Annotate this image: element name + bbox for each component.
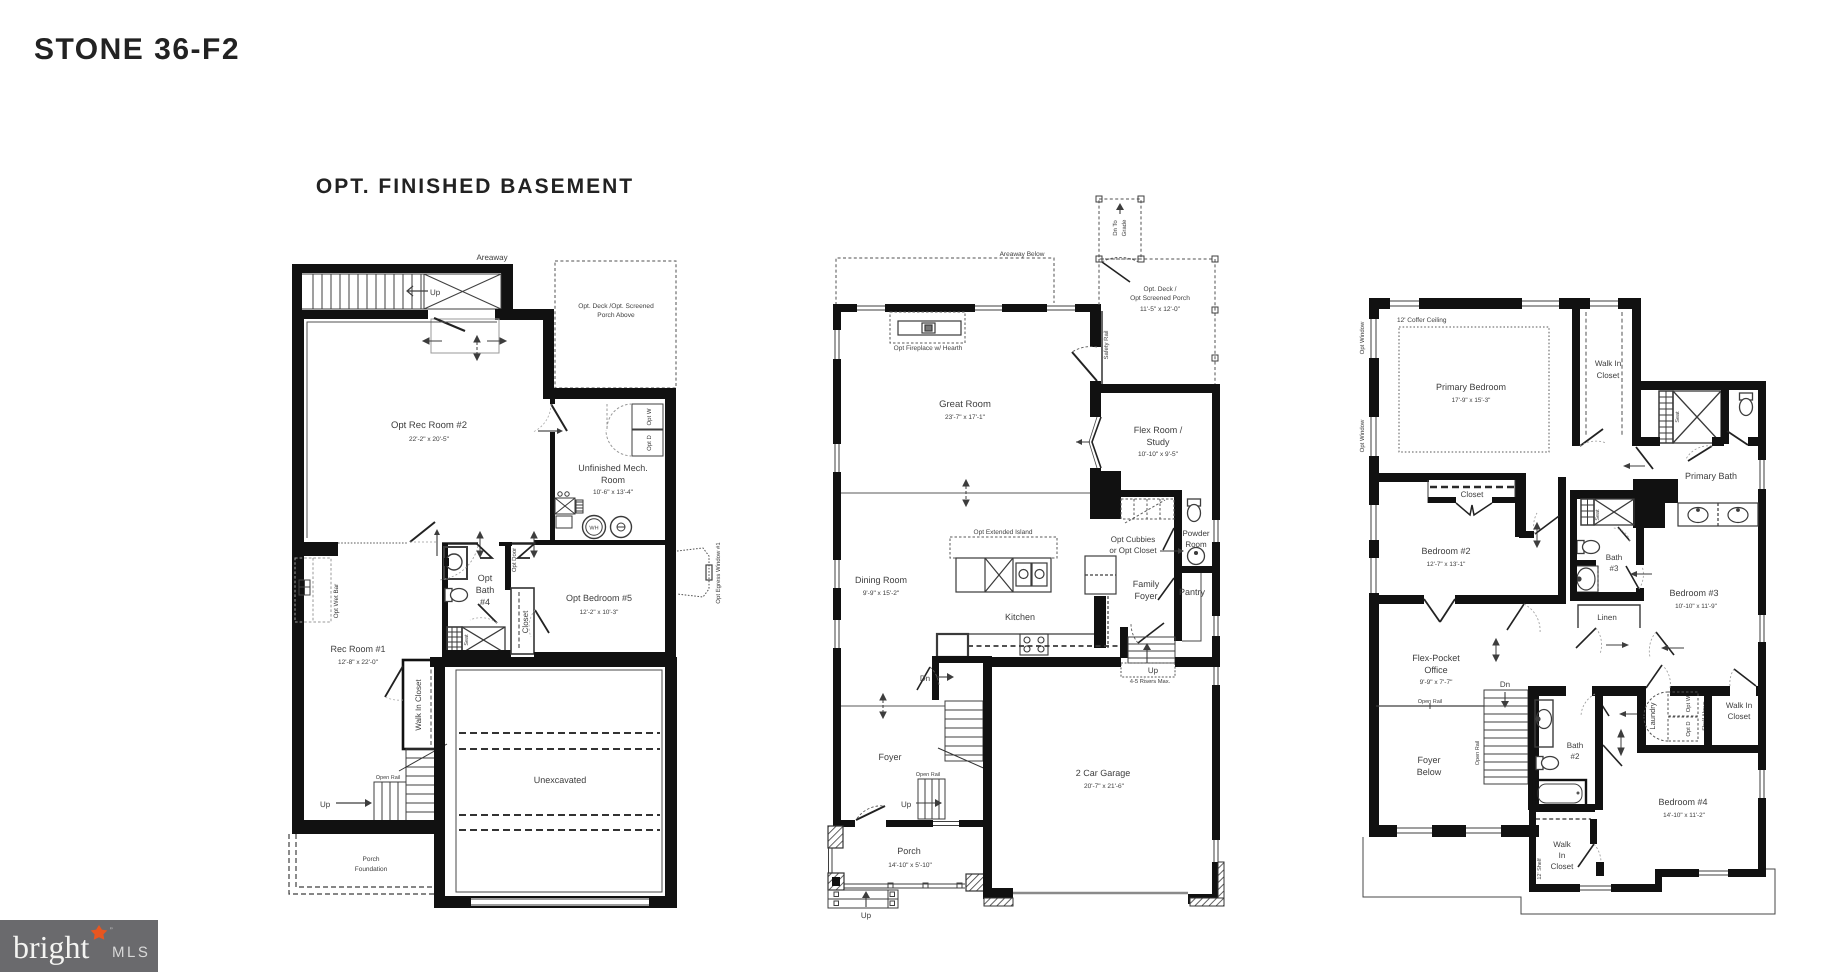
svg-text:Areaway Below: Areaway Below [1000,251,1045,258]
svg-text:Areaway: Areaway [476,253,507,262]
svg-text:20'-7" x 21'-6": 20'-7" x 21'-6" [1084,783,1125,790]
svg-text:In: In [1559,851,1566,860]
svg-text:#3: #3 [1610,564,1619,573]
svg-text:Pantry: Pantry [1179,587,1206,597]
svg-text:#2: #2 [1571,752,1580,761]
svg-text:Opt Window: Opt Window [1359,419,1366,452]
svg-text:Seat: Seat [1675,411,1681,423]
svg-text:10'-10" x 11'-9": 10'-10" x 11'-9" [1675,603,1717,610]
svg-text:Walk: Walk [1553,840,1571,849]
svg-text:Bedroom #3: Bedroom #3 [1669,588,1718,598]
svg-text:OPT. FINISHED BASEMENT: OPT. FINISHED BASEMENT [316,175,634,198]
svg-text:12'-7" x 13'-1": 12'-7" x 13'-1" [1427,561,1466,568]
svg-text:Rec Room #1: Rec Room #1 [330,644,385,654]
svg-text:12' Shelf: 12' Shelf [1537,858,1543,880]
svg-text:Laundry: Laundry [1648,702,1657,729]
svg-text:Unexcavated: Unexcavated [534,775,587,785]
svg-text:STONE 36-F2: STONE 36-F2 [34,33,240,66]
svg-text:Opt Cubbies: Opt Cubbies [1111,535,1155,544]
svg-text:23'-7" x 17'-1": 23'-7" x 17'-1" [945,414,986,421]
svg-text:22'-2" x 20'-5": 22'-2" x 20'-5" [409,436,450,443]
svg-text:14'-10" x 11'-2": 14'-10" x 11'-2" [1663,812,1705,819]
svg-text:Closet: Closet [521,610,530,633]
svg-text:Opt Egress Window #1: Opt Egress Window #1 [715,542,722,604]
svg-text:2 Car Garage: 2 Car Garage [1076,768,1131,778]
svg-text:Opt. Deck /: Opt. Deck / [1144,286,1177,293]
svg-text:Opt Extended Island: Opt Extended Island [974,529,1033,536]
svg-text:12'-2" x 10'-3": 12'-2" x 10'-3" [580,609,619,616]
svg-text:Closet: Closet [1728,712,1751,721]
svg-text:MLS: MLS [112,944,150,961]
svg-text:Safety Rail: Safety Rail [1103,330,1110,359]
svg-text:bright: bright [13,929,90,965]
svg-text:10'-10" x 9'-5": 10'-10" x 9'-5" [1138,451,1179,458]
svg-text:Walk In: Walk In [1726,701,1752,710]
svg-text:Bath: Bath [476,585,495,595]
svg-text:#4: #4 [480,597,490,607]
svg-text:Up: Up [430,288,441,297]
svg-text:Opt: Opt [478,573,493,583]
svg-text:”: ” [110,926,113,935]
svg-text:Room: Room [1185,540,1207,549]
svg-text:Linen: Linen [1597,613,1617,622]
svg-text:Porch Above: Porch Above [597,312,635,319]
svg-text:12' Coffer Ceiling: 12' Coffer Ceiling [1397,317,1447,324]
svg-text:Closet: Closet [1551,862,1574,871]
svg-text:Open Rail: Open Rail [1475,741,1481,765]
svg-text:4-5 Risers Max.: 4-5 Risers Max. [1130,678,1171,685]
svg-text:11'-5" x 12'-0": 11'-5" x 12'-0" [1140,306,1181,313]
svg-text:Opt W: Opt W [646,408,653,425]
svg-text:Kitchen: Kitchen [1005,612,1035,622]
svg-text:Flex Room /: Flex Room / [1134,425,1183,435]
svg-text:Opt D: Opt D [646,434,653,450]
svg-text:Seat: Seat [1595,509,1601,521]
svg-text:Study: Study [1146,437,1170,447]
svg-text:Seat: Seat [464,634,470,646]
svg-text:Up: Up [861,911,872,920]
svg-text:Flex-Pocket: Flex-Pocket [1412,653,1460,663]
svg-text:Porch: Porch [897,846,921,856]
svg-text:Opt Screened Porch: Opt Screened Porch [1130,295,1190,302]
svg-text:Bath: Bath [1567,741,1583,750]
svg-text:Porch: Porch [363,856,380,863]
svg-text:Dn: Dn [1500,680,1510,689]
svg-text:Up: Up [1148,666,1159,675]
svg-text:Primary Bedroom: Primary Bedroom [1436,382,1506,392]
svg-text:Closet: Closet [1461,490,1484,499]
svg-text:Powder: Powder [1182,529,1209,538]
svg-text:Up: Up [320,800,331,809]
svg-text:Foyer: Foyer [1134,591,1157,601]
svg-text:Bedroom #2: Bedroom #2 [1421,546,1470,556]
svg-text:14'-10" x 5'-10": 14'-10" x 5'-10" [888,862,932,869]
svg-text:Opt Window: Opt Window [1359,321,1366,354]
svg-text:Foyer: Foyer [1417,755,1440,765]
svg-text:9'-9" x 7'-7": 9'-9" x 7'-7" [1420,679,1453,686]
svg-text:Opt Rec Room #2: Opt Rec Room #2 [391,420,467,431]
svg-text:Dn To: Dn To [1112,220,1119,236]
svg-text:Opt Door: Opt Door [511,548,518,572]
svg-text:9'-9" x 15'-2": 9'-9" x 15'-2" [863,590,900,597]
svg-text:Up: Up [901,800,912,809]
svg-text:Open Rail: Open Rail [916,772,940,778]
svg-text:Opt Wet Bar: Opt Wet Bar [333,584,340,619]
svg-text:17'-9" x 15'-3": 17'-9" x 15'-3" [1452,397,1491,404]
svg-text:Walk In Closet: Walk In Closet [414,679,423,731]
svg-text:Closet: Closet [1597,371,1620,380]
svg-text:Primary Bath: Primary Bath [1685,471,1737,481]
svg-text:Opt Fireplace w/ Hearth: Opt Fireplace w/ Hearth [894,345,963,352]
svg-text:Family: Family [1133,579,1160,589]
svg-text:Bedroom #4: Bedroom #4 [1658,797,1707,807]
svg-text:WH: WH [589,526,598,532]
svg-text:Dn: Dn [920,674,930,683]
svg-text:Grade: Grade [1121,219,1128,236]
svg-text:Opt. Deck /Opt. Screened: Opt. Deck /Opt. Screened [578,303,654,310]
svg-text:Open Rail: Open Rail [376,775,400,781]
svg-text:Walk In: Walk In [1595,359,1621,368]
svg-text:Opt Bedroom #5: Opt Bedroom #5 [566,593,632,603]
svg-text:Unfinished Mech.: Unfinished Mech. [578,463,648,473]
svg-text:Room: Room [601,475,625,485]
svg-text:or Opt Closet: or Opt Closet [1109,546,1157,555]
svg-text:12'-8" x 22'-0": 12'-8" x 22'-0" [338,659,379,666]
svg-text:Great Room: Great Room [939,399,991,410]
svg-text:Foyer: Foyer [878,752,901,762]
svg-text:Office: Office [1424,665,1447,675]
svg-text:Foundation: Foundation [355,866,388,873]
svg-text:Bath: Bath [1606,553,1622,562]
svg-text:Dining Room: Dining Room [855,575,907,585]
svg-text:Opt D: Opt D [1685,721,1692,736]
svg-text:Opt W: Opt W [1685,695,1692,712]
svg-text:Below: Below [1417,767,1442,777]
svg-text:10'-6" x 13'-4": 10'-6" x 13'-4" [593,489,634,496]
